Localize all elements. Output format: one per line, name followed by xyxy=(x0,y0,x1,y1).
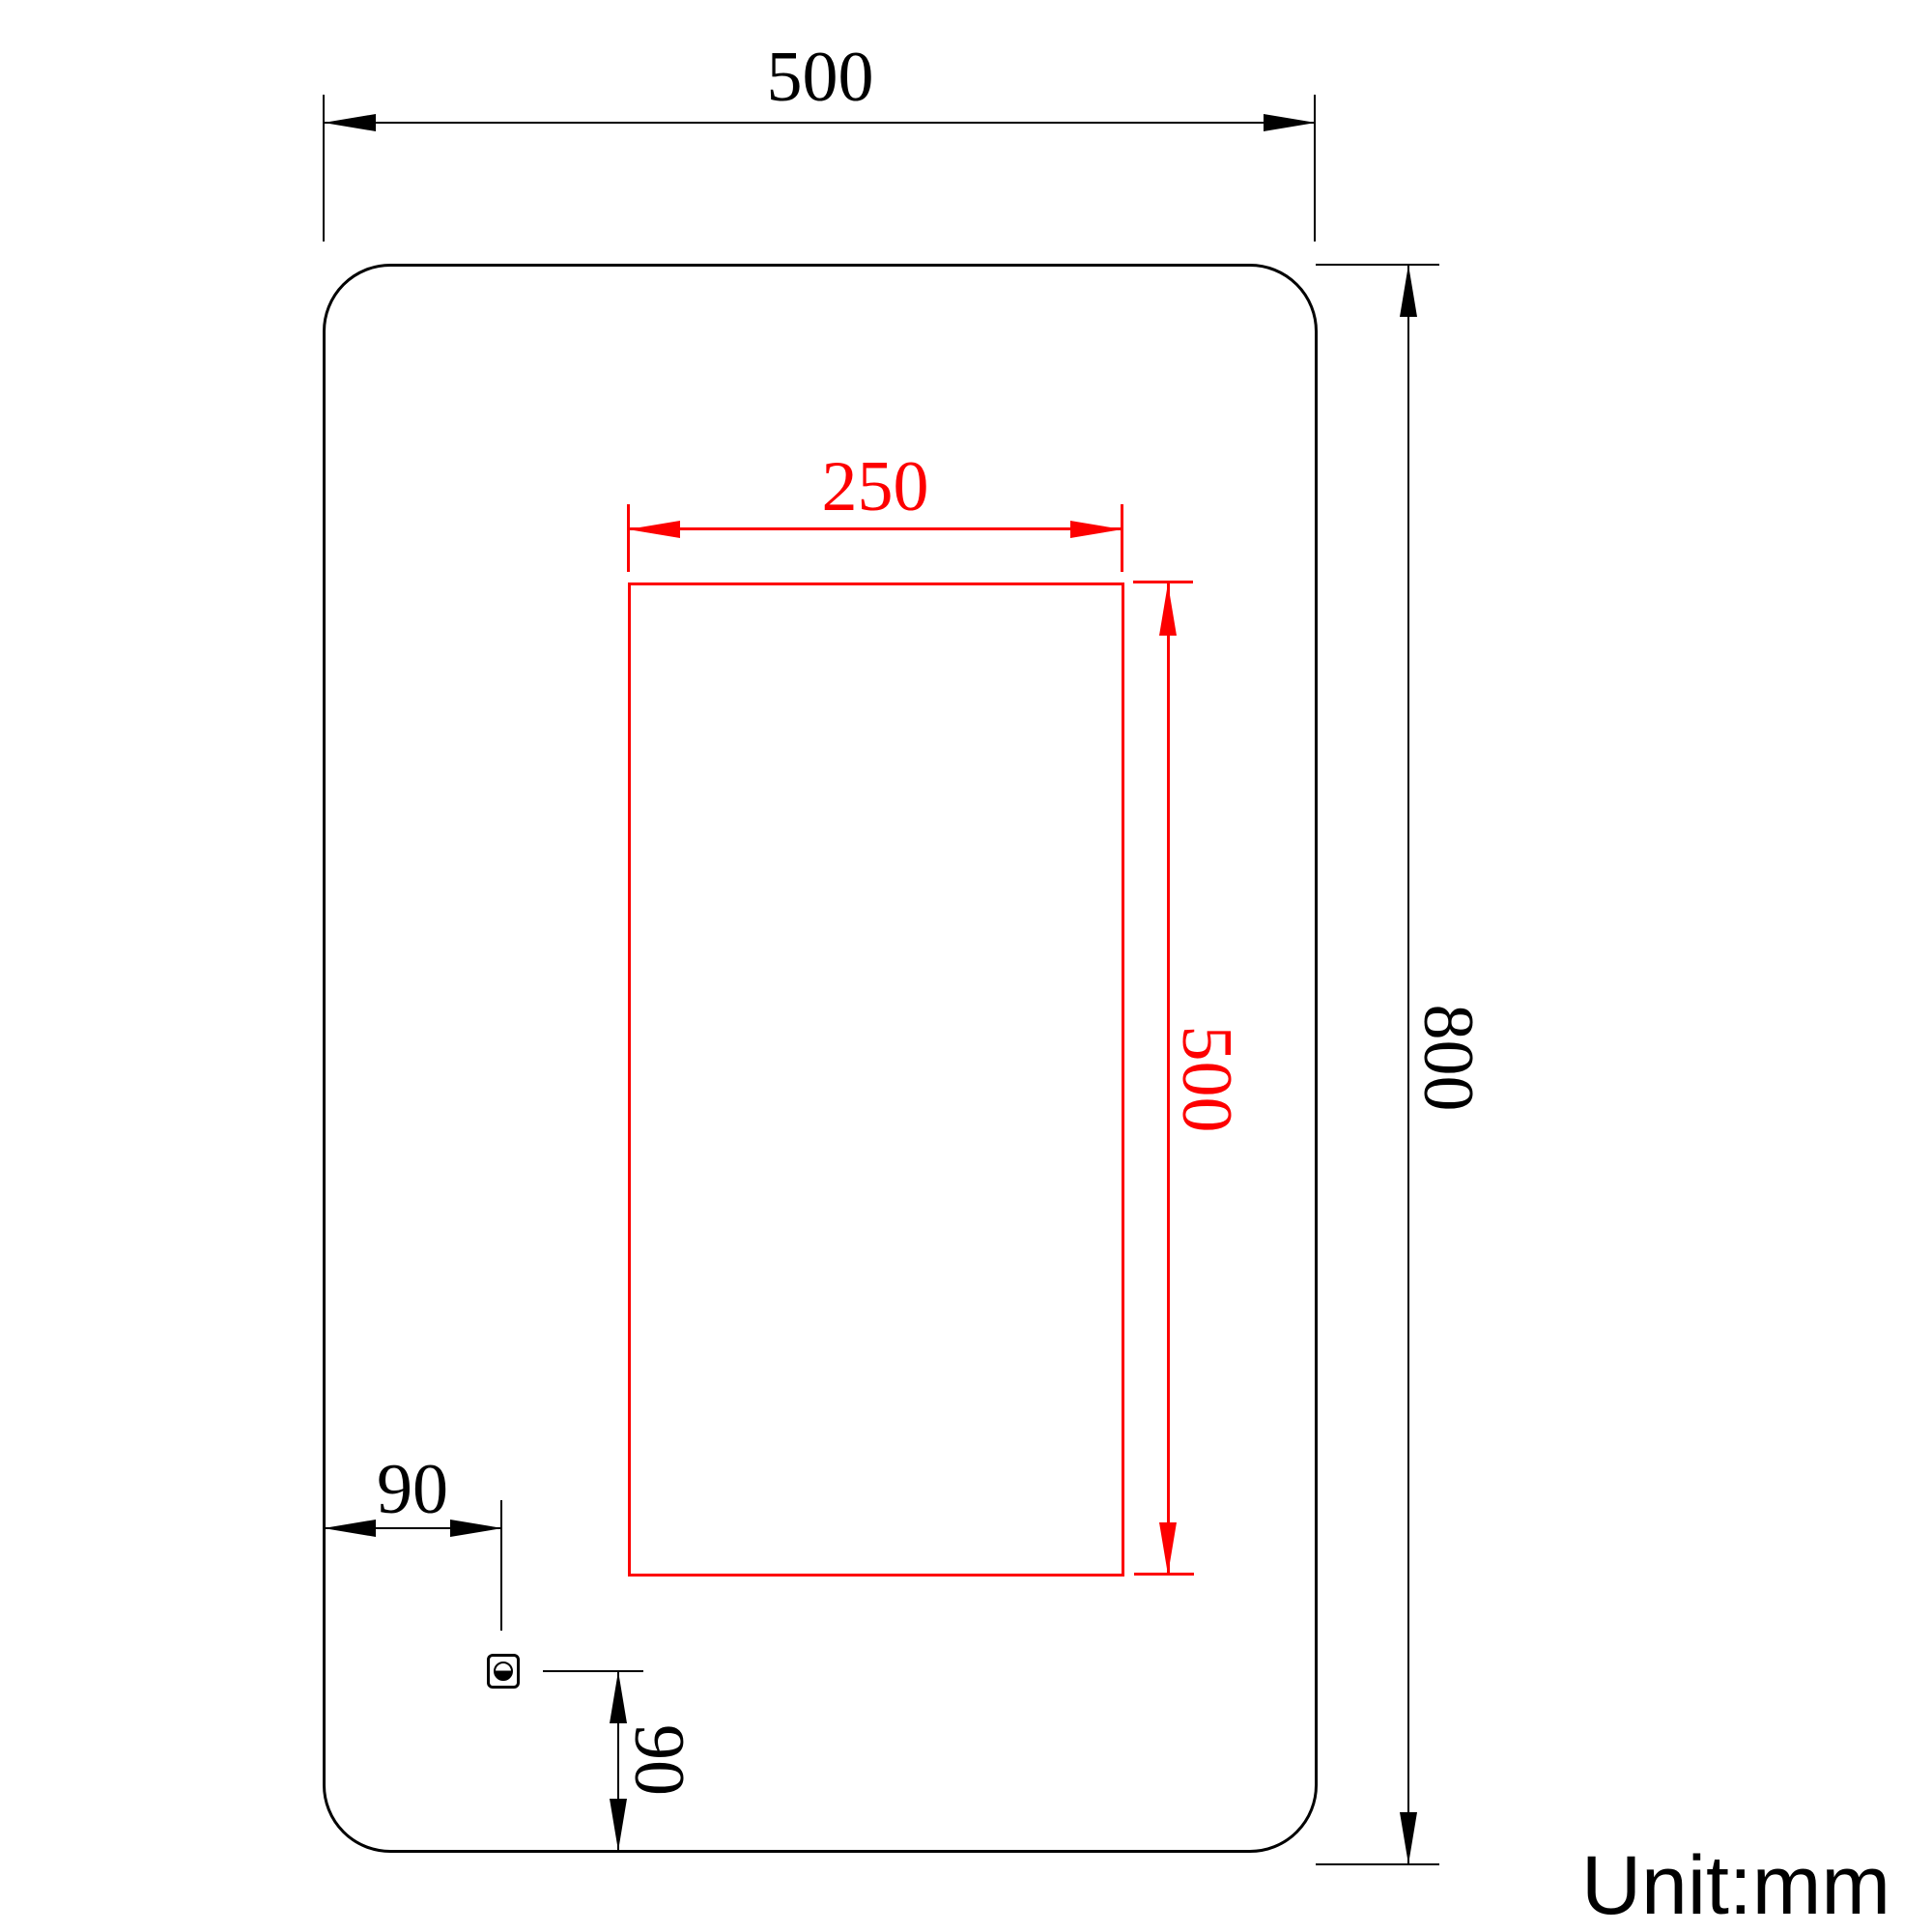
extension-line xyxy=(1316,1863,1439,1865)
outer-width-label: 500 xyxy=(767,42,874,113)
arrow-left-icon xyxy=(628,521,680,538)
arrow-left-icon xyxy=(324,114,376,131)
inner-cutout-outline xyxy=(628,582,1124,1577)
switch-offset-left-label: 90 xyxy=(377,1454,448,1525)
unit-note: Unit:mm xyxy=(1581,1844,1890,1927)
arrow-right-icon xyxy=(450,1520,502,1537)
outer-height-label: 800 xyxy=(1412,1005,1484,1112)
inner-width-label: 250 xyxy=(822,451,929,523)
arrow-up-icon xyxy=(1400,265,1417,317)
dimension-line-outer-width xyxy=(324,122,1316,124)
switch-dot-icon xyxy=(494,1662,513,1681)
arrow-up-icon xyxy=(610,1671,627,1723)
inner-height-label: 500 xyxy=(1171,1026,1242,1133)
arrow-left-icon xyxy=(324,1520,376,1537)
arrow-down-icon xyxy=(1159,1522,1177,1575)
extension-line xyxy=(500,1500,502,1631)
extension-line xyxy=(1316,264,1439,266)
dimension-line-inner-width xyxy=(628,527,1122,530)
technical-drawing: 500 800 250 500 90 90 Unit:mm xyxy=(0,0,1932,1932)
switch-offset-bottom-label: 90 xyxy=(623,1724,695,1796)
arrow-up-icon xyxy=(1159,583,1177,636)
arrow-right-icon xyxy=(1264,114,1316,131)
extension-line xyxy=(627,504,630,572)
arrow-down-icon xyxy=(610,1799,627,1851)
extension-line xyxy=(543,1670,643,1672)
arrow-right-icon xyxy=(1070,521,1122,538)
switch-icon xyxy=(487,1654,520,1689)
extension-line xyxy=(1121,504,1123,572)
arrow-down-icon xyxy=(1400,1812,1417,1864)
